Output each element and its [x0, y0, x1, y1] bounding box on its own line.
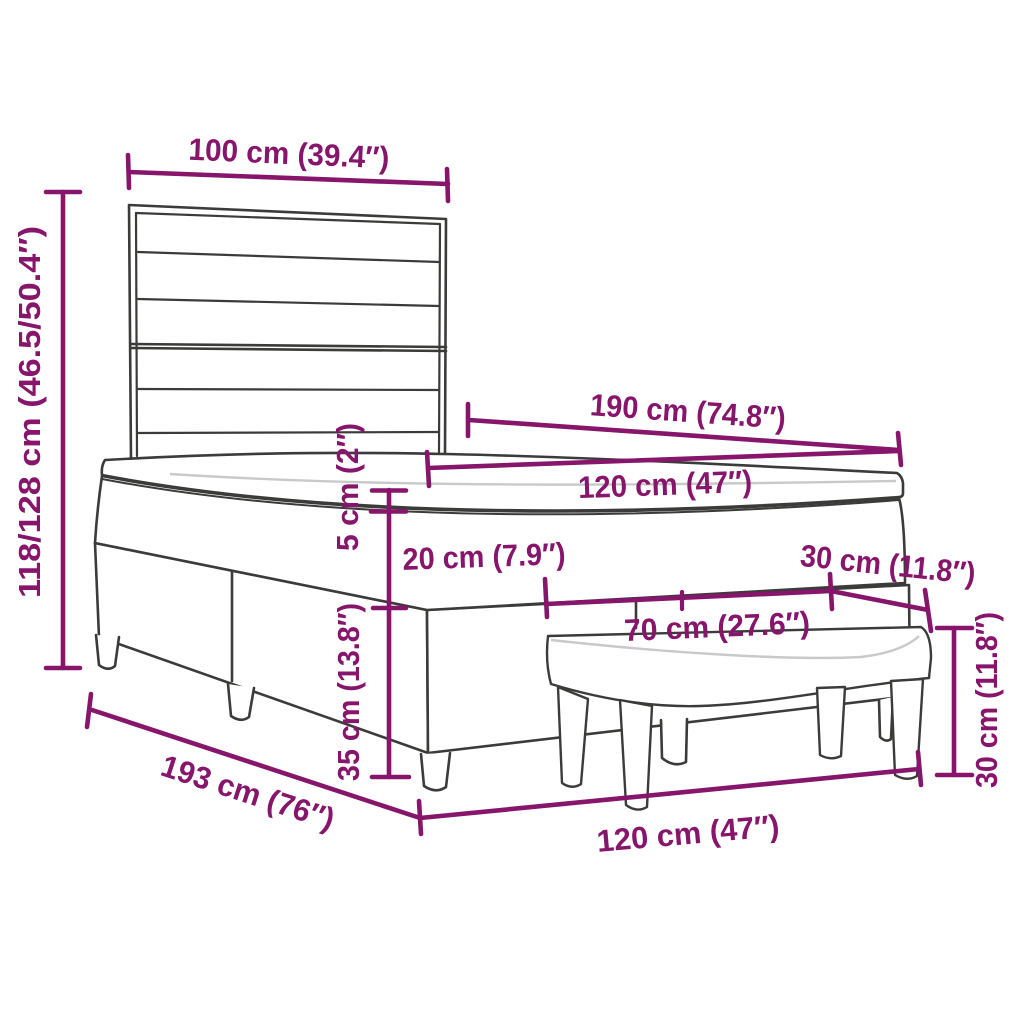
svg-text:5 cm (2″): 5 cm (2″) — [330, 423, 365, 551]
svg-text:120 cm (47″): 120 cm (47″) — [577, 464, 752, 505]
svg-text:35 cm (13.8″): 35 cm (13.8″) — [331, 603, 366, 781]
svg-text:118/128 cm (46.5/50.4″): 118/128 cm (46.5/50.4″) — [12, 226, 47, 598]
svg-text:30 cm (11.8″): 30 cm (11.8″) — [969, 612, 1004, 788]
svg-text:20 cm (7.9″): 20 cm (7.9″) — [402, 536, 566, 577]
